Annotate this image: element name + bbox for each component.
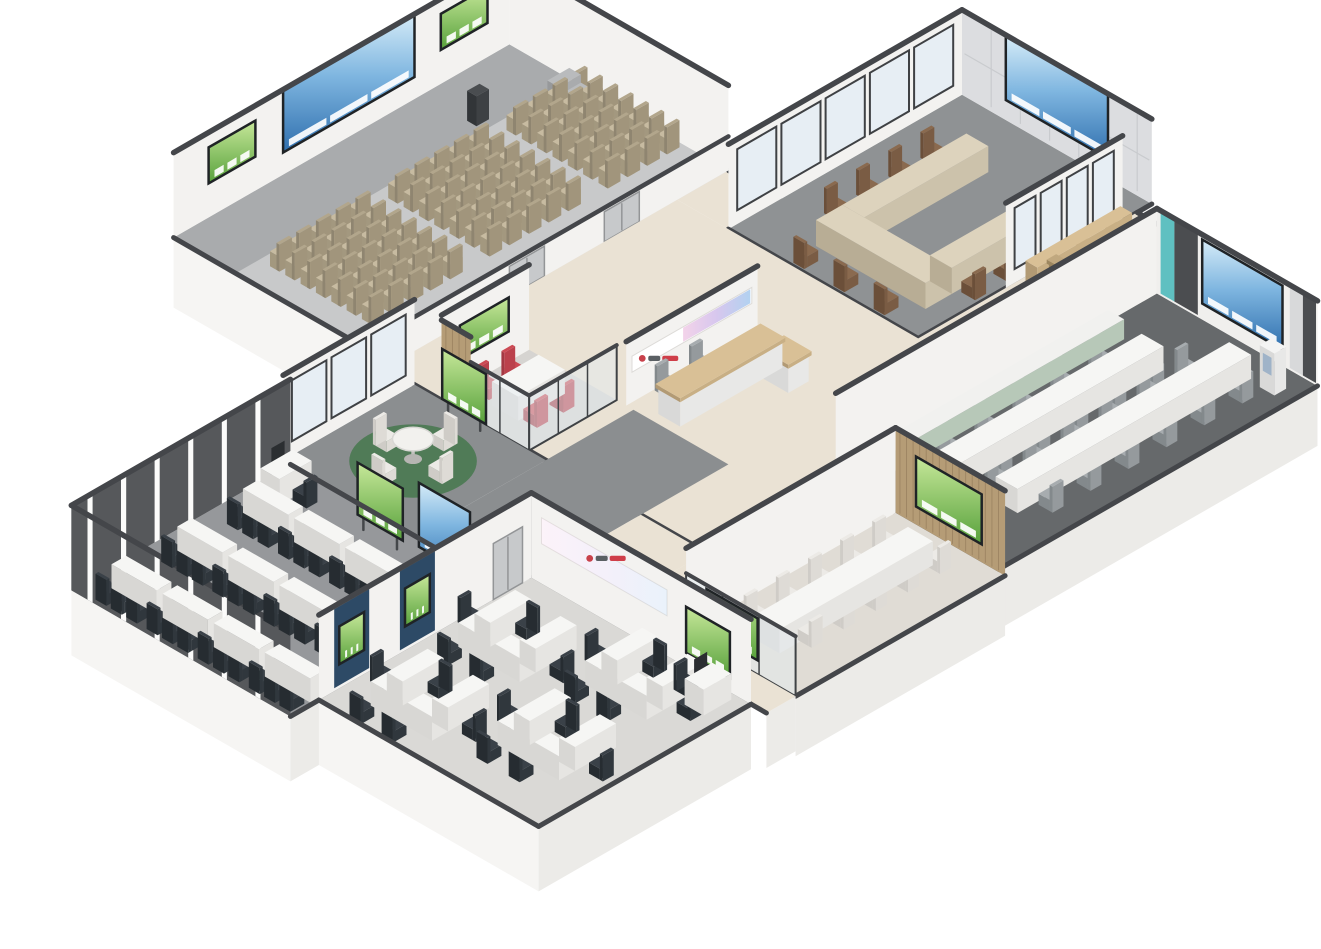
floorplan-figure: Isometric 3D cutaway floor plan of a cor… (0, 0, 1321, 949)
mobile-device-cart (1260, 338, 1286, 395)
floorplan-canvas (0, 0, 1321, 949)
stage-lectern (467, 84, 489, 127)
